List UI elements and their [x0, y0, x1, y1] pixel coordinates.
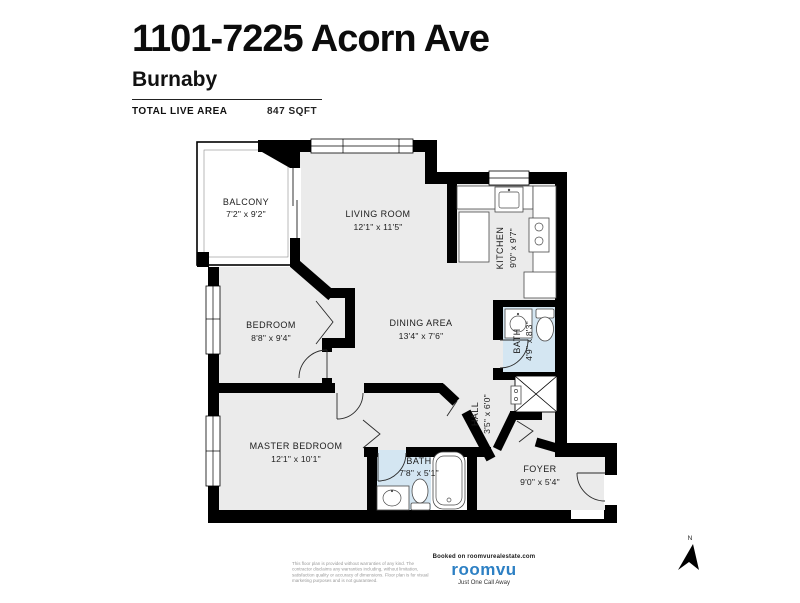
kitchen-dims: 9'0" x 9'7" — [508, 228, 518, 268]
balcony-name: BALCONY — [223, 197, 269, 207]
foyer-dims: 9'0" x 5'4" — [520, 477, 560, 487]
stove — [529, 218, 549, 252]
upper-bath-name: BATH — [512, 328, 522, 353]
kitchen-name: KITCHEN — [495, 227, 505, 270]
balcony-sliding-door — [289, 168, 301, 238]
disclaimer-text: This floor plan is provided without warr… — [292, 561, 431, 584]
roomvu-logo: roomvu — [430, 560, 538, 580]
fridge — [459, 212, 489, 262]
washer-dryer-closet — [511, 376, 557, 412]
bedroom-dims: 8'8" x 9'4" — [251, 333, 291, 343]
hall-name: HALL — [470, 402, 480, 426]
north-label: N — [688, 535, 693, 542]
kitchen-sink — [495, 187, 523, 212]
branding-block: Booked on roomvurealestate.com roomvu Ju… — [430, 554, 538, 586]
bedroom-name: BEDROOM — [246, 320, 296, 330]
living-room-dims: 12'1" x 11'5" — [353, 222, 402, 232]
floor-plan-drawing: BALCONY 7'2" x 9'2" LIVING ROOM 12'1" x … — [0, 0, 800, 603]
toilet — [536, 309, 554, 341]
upper-bath-dims: 4'9" x 8'3" — [524, 321, 534, 361]
lower-bath-name: BATH — [406, 456, 431, 466]
floor-plan-page: 1101-7225 Acorn Ave Burnaby TOTAL LIVE A… — [0, 0, 800, 603]
lower-bath-dims: 7'8" x 5'1" — [399, 468, 439, 478]
living-room-name: LIVING ROOM — [346, 209, 411, 219]
dining-area-dims: 13'4" x 7'6" — [399, 331, 444, 341]
branding-tagline: Just One Call Away — [430, 580, 538, 586]
foyer-name: FOYER — [523, 464, 556, 474]
north-arrow-icon — [678, 544, 699, 570]
hall-dims: 3'5" x 6'0" — [482, 394, 492, 434]
master-bedroom-name: MASTER BEDROOM — [250, 441, 343, 451]
north-compass: N — [678, 535, 699, 570]
bathroom-sink — [377, 486, 409, 510]
kitchen-counter-lower — [524, 272, 556, 298]
dining-area-name: DINING AREA — [390, 318, 453, 328]
master-bedroom-dims: 12'1" x 10'1" — [271, 454, 321, 464]
bathtub — [433, 452, 465, 509]
balcony-dims: 7'2" x 9'2" — [226, 209, 266, 219]
